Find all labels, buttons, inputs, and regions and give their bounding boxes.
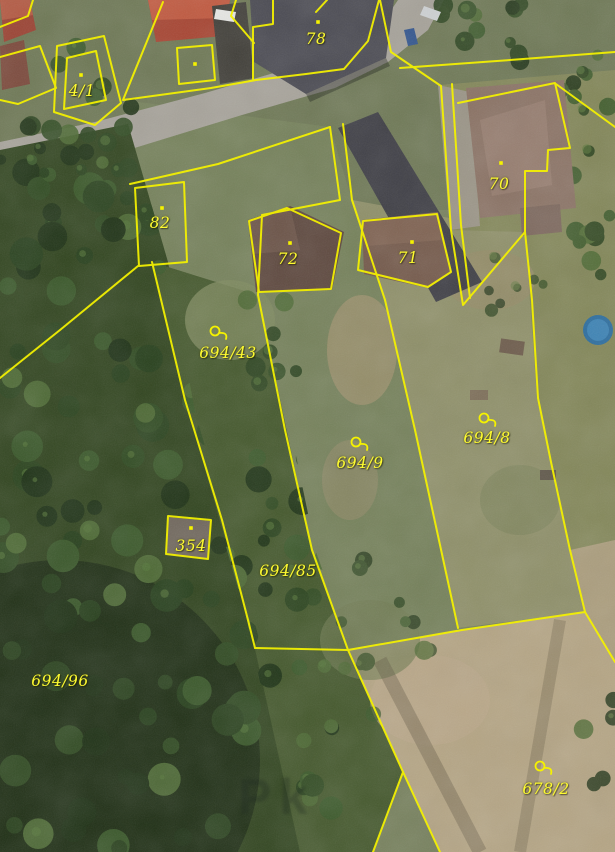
- parcel-point-icon: [189, 526, 193, 530]
- parcel-point-icon: [160, 206, 164, 210]
- cadastral-map-viewport[interactable]: 4/17882707271694/43694/9694/8354694/8569…: [0, 0, 615, 852]
- parcel-point-icon: [288, 241, 292, 245]
- parcel-point-icon: [499, 161, 503, 165]
- parcel-point-icon: [79, 73, 83, 77]
- parcel-point-icon: [193, 62, 197, 66]
- aerial-photo-layer: [0, 0, 615, 852]
- parcel-point-icon: [410, 240, 414, 244]
- parcel-point-icon: [316, 20, 320, 24]
